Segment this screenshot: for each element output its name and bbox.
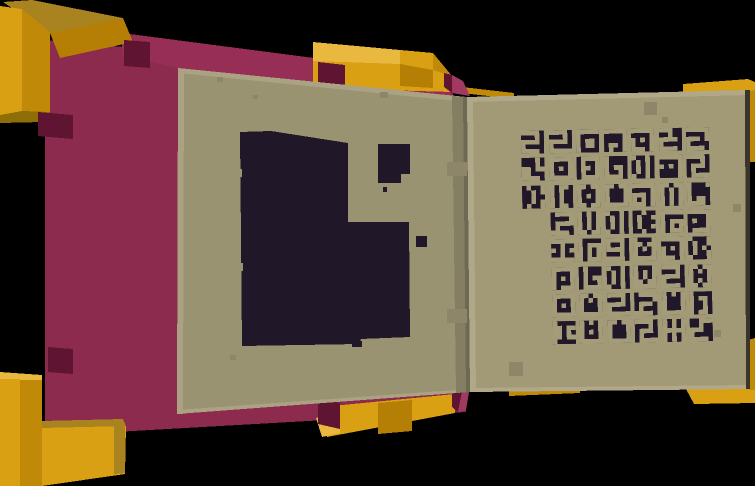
glyph-cell-cd — [552, 321, 575, 344]
glyph-cell-pp — [631, 156, 654, 179]
glyph-cell-brk — [549, 185, 572, 208]
glyph-cell-zz — [634, 292, 657, 315]
glyph-cell-s1b — [548, 130, 571, 153]
clasp-bottom-middle-dark — [378, 400, 412, 434]
page-artwork-square — [416, 236, 427, 247]
cover-shadow-3 — [38, 112, 73, 139]
glyph-cell-bxo — [660, 237, 683, 260]
clasp-top-middle-pale — [313, 42, 400, 64]
page-left-speckle-4 — [230, 355, 236, 360]
glyph-cell-pp — [606, 266, 629, 289]
glyph-cell-uck2 — [580, 321, 603, 344]
glyph-cell-ring — [552, 294, 575, 317]
spine-top-wedge-light — [452, 75, 470, 96]
glyph-cell-pp — [605, 211, 628, 234]
glyph-cell-b6 — [578, 239, 601, 262]
page-left-speckle-3 — [380, 92, 388, 98]
glyph-grid — [516, 123, 720, 353]
glyph-cell-gspi — [605, 238, 628, 261]
glyph-cell-ring — [549, 157, 572, 180]
glyph-cell-s1b — [607, 293, 630, 316]
glyph-cell-u2 — [604, 183, 627, 206]
page-right-speckle-1 — [644, 102, 657, 115]
fez-tome-scene — [0, 0, 755, 486]
glyph-cell-wu — [633, 238, 656, 261]
glyph-cell-zz2 — [635, 320, 658, 343]
page-artwork-nub — [352, 341, 362, 347]
glyph-cell-s1 — [521, 130, 544, 153]
glyph-cell-hh — [662, 319, 685, 342]
glyph-cell-uck — [579, 293, 602, 316]
clasp-bottom-left-front — [0, 379, 20, 486]
glyph-cell-lh — [690, 319, 713, 342]
glyph-cell-bxd — [551, 267, 574, 290]
page-left-speckle-1 — [217, 77, 223, 82]
glyph-cell-nd2 — [687, 209, 710, 232]
page-curl-mark-2 — [447, 309, 467, 323]
page-curl-mark-1 — [447, 162, 467, 176]
cover-shadow-1 — [124, 40, 150, 68]
glyph-cell-gs2 — [660, 210, 683, 233]
glyph-cell-pd2 — [688, 237, 711, 260]
page-right-speckle-3 — [733, 204, 741, 212]
glyph-cell-zz2 — [686, 154, 709, 177]
glyph-cell-lb — [604, 156, 627, 179]
glyph-cell-pdd — [632, 210, 655, 233]
page-left-speckle-2 — [253, 95, 258, 99]
glyph-cell-ring2 — [576, 157, 599, 180]
page-right-speckle-2 — [662, 117, 668, 123]
glyph-cell-gs — [632, 183, 655, 206]
clasp-top-left-front — [0, 6, 22, 115]
glyph-cell-s1b2 — [550, 212, 573, 235]
cover-shadow-2 — [318, 62, 345, 86]
glyph-cell-wn2 — [577, 211, 600, 234]
glyph-cell-u2 — [607, 320, 630, 343]
glyph-cell-b6b — [689, 291, 712, 314]
page-left-edge-hi — [177, 68, 184, 414]
glyph-cell-lb2 — [579, 266, 602, 289]
page-artwork-notch-1 — [238, 169, 242, 177]
page-artwork-dot — [383, 187, 387, 192]
cover-shadow-4 — [48, 347, 73, 374]
glyph-cell-ndd — [659, 155, 682, 178]
glyph-cell-tri — [521, 158, 544, 181]
clasp-bottom-left-side — [20, 380, 42, 486]
glyph-cell-u2d — [662, 292, 685, 315]
page-right-speckle-4 — [509, 362, 523, 376]
glyph-cell-bxo — [631, 128, 654, 151]
glyph-cell-nd — [603, 129, 626, 152]
clasp-bottom-left-cap — [114, 426, 125, 474]
glyph-cell-wn3 — [689, 264, 712, 287]
glyph-cell-gam — [576, 129, 599, 152]
glyph-cell-ringd — [577, 184, 600, 207]
clasp-bottom-left-arm — [42, 426, 126, 486]
glyph-cell-wn — [659, 182, 682, 205]
glyph-cell-pd — [522, 185, 545, 208]
glyph-cell-tt — [551, 239, 574, 262]
glyph-cell-ld — [687, 182, 710, 205]
glyph-cell-s3 — [658, 128, 681, 151]
glyph-cell-sd — [686, 127, 709, 150]
glyph-cell-wu2 — [634, 265, 657, 288]
glyph-cell-s1 — [661, 264, 684, 287]
page-artwork-notch-2 — [238, 263, 243, 271]
